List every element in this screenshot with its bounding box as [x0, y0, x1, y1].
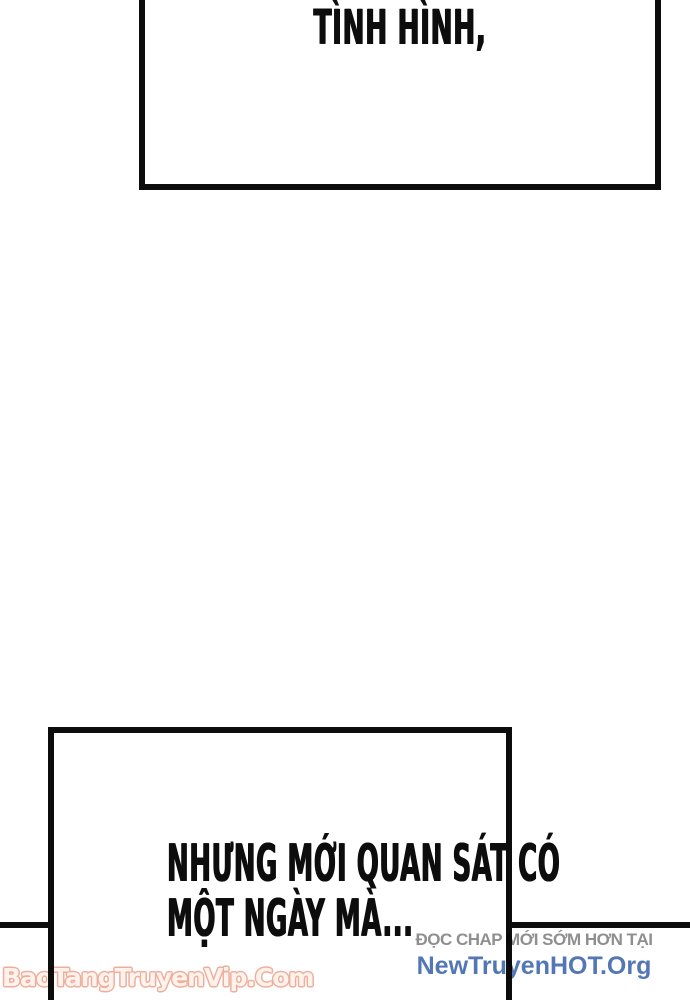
speech-text-bottom-line1: NHƯNG MỚI QUAN SÁT CÓ [167, 837, 393, 892]
watermark-tagline: ĐỌC CHAP MỚI SỚM HƠN TẠI [403, 930, 665, 950]
comic-page: TÌNH HÌNH, NHƯNG MỚI QUAN SÁT CÓ MỘT NGÀ… [0, 0, 690, 1000]
speech-balloon-top: TÌNH HÌNH, [139, 0, 661, 190]
speech-text-top: TÌNH HÌNH, [260, 0, 541, 56]
watermark-site-name: NewTruyenHOT.Org [403, 952, 665, 981]
watermark-newtruyenhot: ĐỌC CHAP MỚI SỚM HƠN TẠI NewTruyenHOT.Or… [403, 930, 665, 981]
watermark-baotangtruyenvip: BaoTangTruyenVip.Com [2, 963, 313, 992]
speech-text-bottom-line2: MỘT NGÀY MÀ... [167, 892, 393, 947]
speech-text-bottom: NHƯNG MỚI QUAN SÁT CÓ MỘT NGÀY MÀ... [167, 733, 393, 947]
